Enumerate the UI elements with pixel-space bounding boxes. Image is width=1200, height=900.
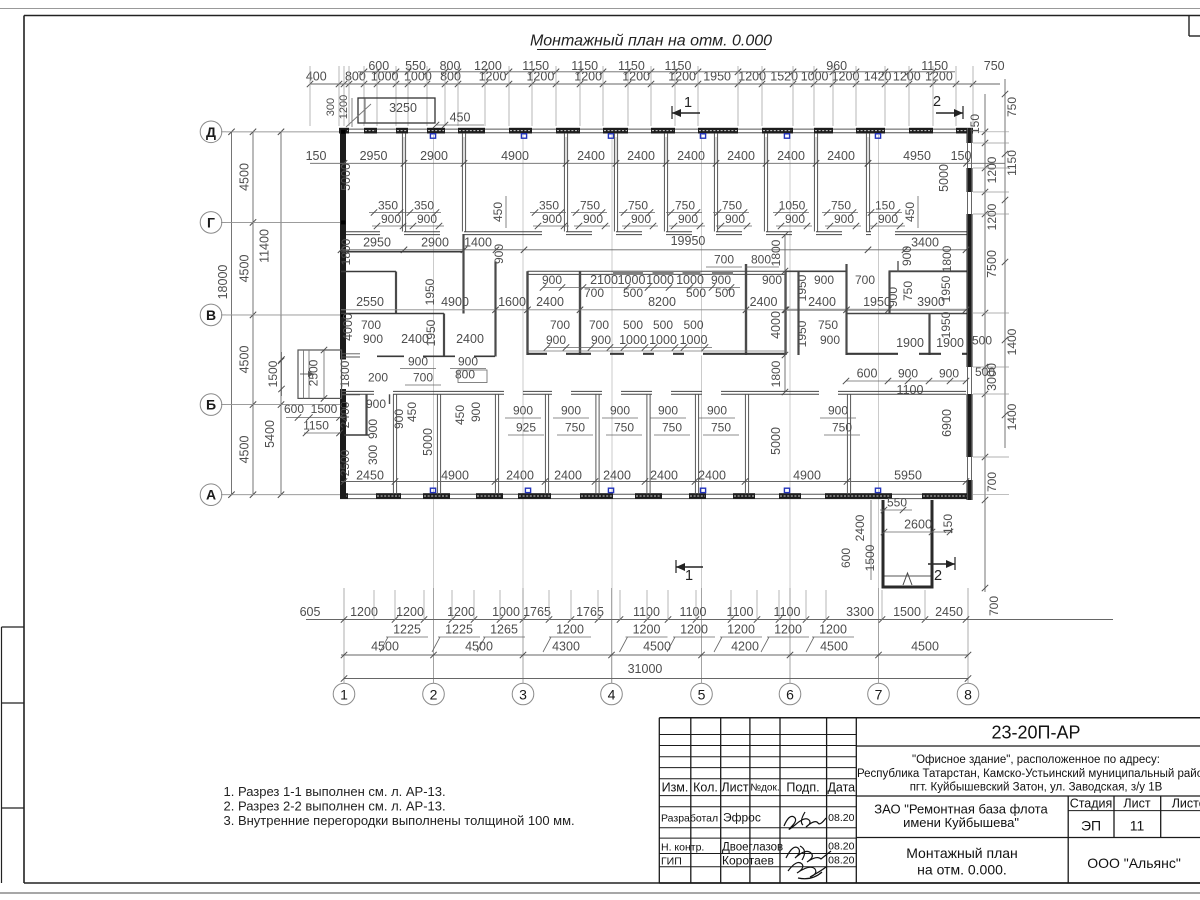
svg-text:4300: 4300: [552, 640, 580, 654]
svg-text:1400: 1400: [1005, 403, 1019, 430]
svg-text:1500: 1500: [893, 605, 921, 619]
svg-text:750: 750: [1005, 97, 1019, 117]
svg-text:5400: 5400: [263, 420, 277, 448]
svg-text:Н. контр.: Н. контр.: [661, 842, 704, 854]
svg-text:900: 900: [762, 273, 782, 287]
svg-text:4000: 4000: [769, 311, 783, 339]
svg-text:750: 750: [984, 59, 1005, 73]
svg-text:700: 700: [987, 596, 1001, 616]
svg-text:900: 900: [513, 404, 533, 418]
svg-text:Монтажный план на отм. 0.000: Монтажный план на отм. 0.000: [530, 33, 772, 50]
svg-text:2900: 2900: [420, 149, 448, 163]
svg-text:500: 500: [715, 286, 735, 300]
svg-text:2400: 2400: [577, 149, 605, 163]
svg-text:1: 1: [340, 686, 348, 702]
svg-text:4500: 4500: [238, 346, 252, 374]
svg-text:4950: 4950: [903, 149, 931, 163]
svg-text:400: 400: [306, 70, 327, 84]
svg-text:3250: 3250: [389, 101, 417, 115]
svg-text:500: 500: [972, 334, 992, 348]
svg-text:1265: 1265: [490, 623, 518, 637]
svg-text:2400: 2400: [536, 295, 564, 309]
svg-text:1000: 1000: [676, 273, 704, 287]
svg-text:4900: 4900: [793, 469, 821, 483]
svg-text:750: 750: [901, 281, 915, 301]
svg-text:1200: 1200: [633, 623, 661, 637]
svg-text:6: 6: [786, 686, 794, 702]
svg-text:Двоеглазов: Двоеглазов: [722, 842, 783, 854]
svg-text:900: 900: [886, 287, 900, 307]
svg-text:Республика Татарстан, Камско-У: Республика Татарстан, Камско-Устьинский …: [857, 768, 1200, 780]
svg-text:900: 900: [900, 246, 914, 266]
svg-text:8200: 8200: [648, 295, 676, 309]
svg-text:Б: Б: [206, 397, 216, 413]
svg-text:4500: 4500: [238, 255, 252, 283]
svg-text:А: А: [206, 487, 216, 503]
svg-text:2100: 2100: [590, 273, 618, 287]
svg-text:ГИП: ГИП: [661, 856, 682, 868]
svg-text:1000: 1000: [618, 273, 646, 287]
svg-text:1500: 1500: [311, 402, 338, 416]
svg-text:750: 750: [711, 421, 731, 435]
svg-text:1: 1: [685, 568, 693, 584]
svg-text:5: 5: [698, 686, 706, 702]
svg-text:Эфрос: Эфрос: [723, 811, 761, 825]
svg-text:750: 750: [614, 421, 634, 435]
svg-text:450: 450: [453, 405, 467, 425]
svg-text:900: 900: [408, 355, 428, 369]
svg-text:2950: 2950: [360, 149, 388, 163]
svg-text:4500: 4500: [238, 163, 252, 191]
svg-text:750: 750: [580, 199, 600, 213]
svg-text:350: 350: [539, 199, 559, 213]
svg-text:ООО "Альянс": ООО "Альянс": [1087, 855, 1181, 871]
svg-text:18000: 18000: [216, 265, 230, 300]
svg-text:31000: 31000: [628, 662, 663, 676]
svg-text:450: 450: [405, 402, 419, 422]
svg-text:750: 750: [662, 421, 682, 435]
svg-text:№док.: №док.: [750, 783, 779, 794]
svg-text:4900: 4900: [441, 469, 469, 483]
svg-text:Дата: Дата: [827, 781, 855, 795]
svg-text:900: 900: [392, 409, 406, 429]
svg-text:1150: 1150: [1005, 150, 1019, 176]
svg-text:1200: 1200: [985, 156, 999, 183]
svg-text:2400: 2400: [727, 149, 755, 163]
svg-text:700: 700: [855, 273, 875, 287]
svg-text:4500: 4500: [238, 436, 252, 464]
svg-text:900: 900: [366, 419, 380, 439]
svg-text:11400: 11400: [258, 229, 272, 263]
svg-text:8: 8: [964, 686, 972, 702]
svg-text:Г: Г: [207, 214, 215, 230]
svg-text:4500: 4500: [820, 640, 848, 654]
svg-text:2950: 2950: [363, 236, 391, 250]
svg-text:2400: 2400: [808, 295, 836, 309]
svg-text:1950: 1950: [423, 278, 437, 305]
svg-text:5950: 5950: [894, 469, 922, 483]
svg-text:2400: 2400: [853, 514, 867, 541]
svg-text:1200: 1200: [774, 623, 802, 637]
svg-text:1100: 1100: [774, 605, 801, 619]
svg-text:3300: 3300: [846, 605, 874, 619]
svg-text:08.20: 08.20: [828, 855, 854, 867]
svg-text:1200: 1200: [447, 605, 475, 619]
svg-text:Лист: Лист: [721, 781, 748, 795]
svg-text:450: 450: [491, 202, 505, 222]
svg-text:900: 900: [658, 404, 678, 418]
svg-text:150: 150: [306, 149, 327, 163]
svg-text:900: 900: [814, 273, 834, 287]
svg-text:2500: 2500: [307, 359, 321, 386]
svg-text:1500: 1500: [863, 544, 877, 571]
svg-text:700: 700: [714, 253, 734, 267]
svg-text:4500: 4500: [371, 640, 399, 654]
svg-text:2900: 2900: [421, 236, 449, 250]
svg-text:2550: 2550: [356, 295, 384, 309]
svg-text:1225: 1225: [445, 623, 473, 637]
svg-text:900: 900: [610, 404, 630, 418]
svg-text:2400: 2400: [627, 149, 655, 163]
svg-text:5000: 5000: [339, 163, 353, 191]
svg-text:900: 900: [363, 332, 383, 346]
svg-text:1225: 1225: [393, 623, 421, 637]
svg-text:1950: 1950: [939, 275, 953, 302]
svg-text:Д: Д: [206, 124, 216, 140]
svg-text:1800: 1800: [338, 360, 352, 387]
svg-text:700: 700: [589, 318, 609, 332]
svg-text:1. Разрез 1-1 выполнен см. л.: 1. Разрез 1-1 выполнен см. л. АР-13.: [224, 784, 446, 799]
svg-text:3: 3: [519, 686, 527, 702]
svg-text:"Офисное здание", расположенно: "Офисное здание", расположенное по адрес…: [912, 754, 1160, 766]
svg-text:1200: 1200: [727, 623, 755, 637]
svg-text:Изм.: Изм.: [662, 781, 689, 795]
svg-text:700: 700: [361, 318, 381, 332]
svg-text:350: 350: [414, 199, 434, 213]
svg-text:1400: 1400: [464, 236, 492, 250]
svg-text:900: 900: [898, 367, 918, 381]
svg-text:500: 500: [683, 318, 703, 332]
svg-text:500: 500: [653, 318, 673, 332]
svg-text:750: 750: [832, 421, 852, 435]
svg-text:В: В: [206, 307, 216, 323]
svg-text:750: 750: [628, 199, 648, 213]
svg-text:1400: 1400: [1005, 328, 1019, 355]
svg-text:500: 500: [623, 318, 643, 332]
svg-text:1200: 1200: [338, 95, 350, 119]
svg-text:1000: 1000: [492, 605, 520, 619]
svg-text:1200: 1200: [819, 623, 847, 637]
svg-text:1100: 1100: [633, 605, 660, 619]
svg-text:19950: 19950: [671, 234, 706, 248]
svg-text:1765: 1765: [523, 605, 551, 619]
svg-text:1950: 1950: [939, 311, 953, 338]
svg-text:08.20: 08.20: [828, 812, 854, 824]
svg-text:1950: 1950: [795, 274, 809, 301]
svg-text:1800: 1800: [769, 239, 783, 266]
svg-text:2450: 2450: [356, 469, 384, 483]
svg-text:на отм. 0.000.: на отм. 0.000.: [917, 862, 1007, 878]
svg-text:925: 925: [516, 421, 536, 435]
svg-text:4900: 4900: [441, 295, 469, 309]
svg-text:1900: 1900: [896, 336, 924, 350]
svg-text:1500: 1500: [266, 360, 280, 387]
svg-text:150: 150: [968, 114, 982, 134]
svg-text:2: 2: [934, 568, 942, 584]
svg-text:2400: 2400: [750, 295, 778, 309]
svg-text:600: 600: [857, 367, 878, 381]
svg-text:900: 900: [561, 404, 581, 418]
svg-text:4500: 4500: [911, 640, 939, 654]
svg-text:900: 900: [828, 404, 848, 418]
svg-text:11: 11: [1130, 818, 1145, 834]
svg-text:08.20: 08.20: [828, 841, 854, 853]
svg-text:750: 750: [565, 421, 585, 435]
svg-text:1: 1: [684, 95, 692, 111]
svg-text:2400: 2400: [506, 469, 534, 483]
svg-text:1950: 1950: [795, 320, 809, 347]
svg-text:700: 700: [413, 371, 433, 385]
svg-text:2400: 2400: [677, 149, 705, 163]
svg-text:2450: 2450: [935, 605, 963, 619]
svg-text:750: 750: [831, 199, 851, 213]
svg-text:600: 600: [284, 402, 304, 416]
svg-text:150: 150: [941, 514, 955, 534]
svg-text:5000: 5000: [421, 428, 435, 456]
svg-text:1100: 1100: [897, 383, 924, 397]
svg-text:1200: 1200: [396, 605, 424, 619]
svg-text:900: 900: [939, 367, 959, 381]
svg-text:23-20П-АР: 23-20П-АР: [992, 723, 1081, 743]
svg-text:пгт. Куйбышевский Затон, ул. З: пгт. Куйбышевский Затон, ул. Заводская, …: [910, 782, 1163, 794]
svg-text:2400: 2400: [698, 469, 726, 483]
svg-text:6900: 6900: [940, 409, 954, 437]
svg-text:4500: 4500: [643, 640, 671, 654]
svg-text:2400: 2400: [554, 469, 582, 483]
svg-text:Монтажный план: Монтажный план: [906, 845, 1018, 861]
svg-text:2400: 2400: [603, 469, 631, 483]
svg-text:600: 600: [839, 548, 853, 568]
svg-text:2: 2: [430, 686, 438, 702]
svg-text:1150: 1150: [303, 419, 329, 433]
svg-text:700: 700: [584, 286, 604, 300]
svg-text:5000: 5000: [769, 427, 783, 455]
svg-text:1200: 1200: [985, 203, 999, 230]
svg-text:3. Внутренние перегородки выпо: 3. Внутренние перегородки выполнены толщ…: [224, 813, 575, 828]
svg-text:1950: 1950: [424, 319, 438, 346]
svg-text:1100: 1100: [727, 605, 754, 619]
svg-text:900: 900: [707, 404, 727, 418]
svg-text:550: 550: [887, 496, 907, 510]
svg-text:2. Разрез 2-2 выполнен см. л.: 2. Разрез 2-2 выполнен см. л. АР-13.: [224, 799, 446, 814]
svg-text:750: 750: [722, 199, 742, 213]
svg-text:4900: 4900: [501, 149, 529, 163]
svg-text:350: 350: [378, 199, 398, 213]
svg-text:450: 450: [903, 202, 917, 222]
svg-text:2500: 2500: [338, 449, 352, 476]
svg-text:4000: 4000: [341, 313, 355, 341]
svg-text:2600: 2600: [904, 518, 932, 532]
svg-text:605: 605: [300, 605, 321, 619]
svg-text:2400: 2400: [650, 469, 678, 483]
svg-text:900: 900: [469, 402, 483, 422]
svg-text:300: 300: [366, 445, 380, 465]
svg-text:1200: 1200: [680, 623, 708, 637]
svg-text:ЭП: ЭП: [1081, 818, 1101, 834]
svg-text:5000: 5000: [937, 164, 951, 192]
svg-text:3400: 3400: [911, 236, 939, 250]
svg-text:Разработал: Разработал: [661, 813, 718, 825]
svg-text:4500: 4500: [465, 640, 493, 654]
svg-text:Стадия: Стадия: [1070, 797, 1113, 811]
svg-text:1800: 1800: [940, 245, 954, 272]
svg-text:1200: 1200: [556, 623, 584, 637]
svg-text:2400: 2400: [777, 149, 805, 163]
svg-text:2: 2: [933, 94, 941, 110]
svg-text:2400: 2400: [456, 332, 484, 346]
svg-text:4200: 4200: [731, 640, 759, 654]
svg-text:1600: 1600: [498, 295, 526, 309]
svg-text:7500: 7500: [985, 250, 999, 278]
svg-text:900: 900: [366, 397, 386, 411]
svg-text:1000: 1000: [649, 333, 677, 347]
svg-text:750: 750: [675, 199, 695, 213]
svg-text:1000: 1000: [680, 333, 708, 347]
svg-text:Подп.: Подп.: [786, 781, 819, 795]
svg-text:700: 700: [550, 318, 570, 332]
svg-text:Листов: Листов: [1172, 797, 1200, 811]
svg-text:200: 200: [368, 371, 388, 385]
svg-text:7: 7: [875, 686, 883, 702]
svg-text:1900: 1900: [936, 336, 964, 350]
svg-text:1000: 1000: [619, 333, 647, 347]
svg-text:1050: 1050: [779, 199, 806, 213]
svg-text:Лист: Лист: [1123, 797, 1150, 811]
svg-text:1100: 1100: [680, 605, 707, 619]
svg-text:900: 900: [458, 355, 478, 369]
svg-text:700: 700: [985, 472, 999, 492]
svg-text:1800: 1800: [769, 360, 783, 387]
svg-text:450: 450: [450, 111, 471, 125]
svg-text:1800: 1800: [339, 238, 353, 265]
svg-text:900: 900: [820, 333, 840, 347]
svg-text:300: 300: [325, 98, 337, 116]
svg-text:Коротаев: Коротаев: [722, 854, 774, 868]
svg-text:2400: 2400: [827, 149, 855, 163]
svg-text:имени Куйбышева": имени Куйбышева": [903, 815, 1019, 830]
svg-text:4: 4: [608, 686, 616, 702]
svg-text:Кол.: Кол.: [693, 781, 718, 795]
svg-text:750: 750: [818, 318, 838, 332]
svg-text:150: 150: [875, 199, 895, 213]
svg-text:1765: 1765: [576, 605, 604, 619]
